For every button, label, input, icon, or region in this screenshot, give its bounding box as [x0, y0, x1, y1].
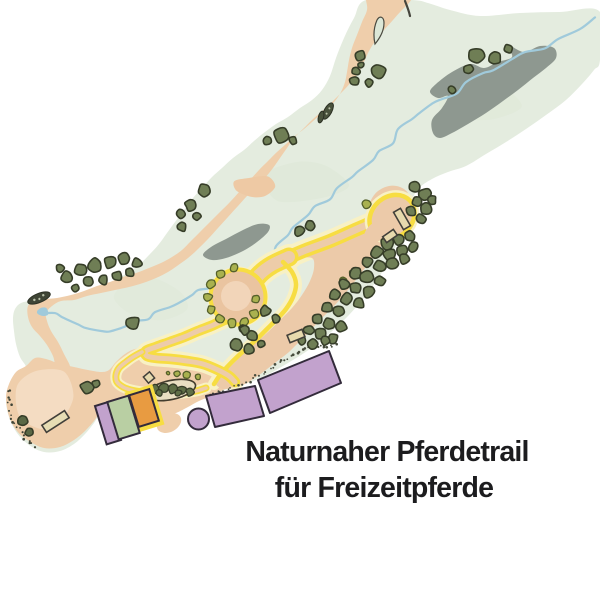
svg-text:Naturnaher Pferdetrail: Naturnaher Pferdetrail: [245, 436, 528, 468]
svg-text:für Freizeitpferde: für Freizeitpferde: [275, 472, 493, 504]
